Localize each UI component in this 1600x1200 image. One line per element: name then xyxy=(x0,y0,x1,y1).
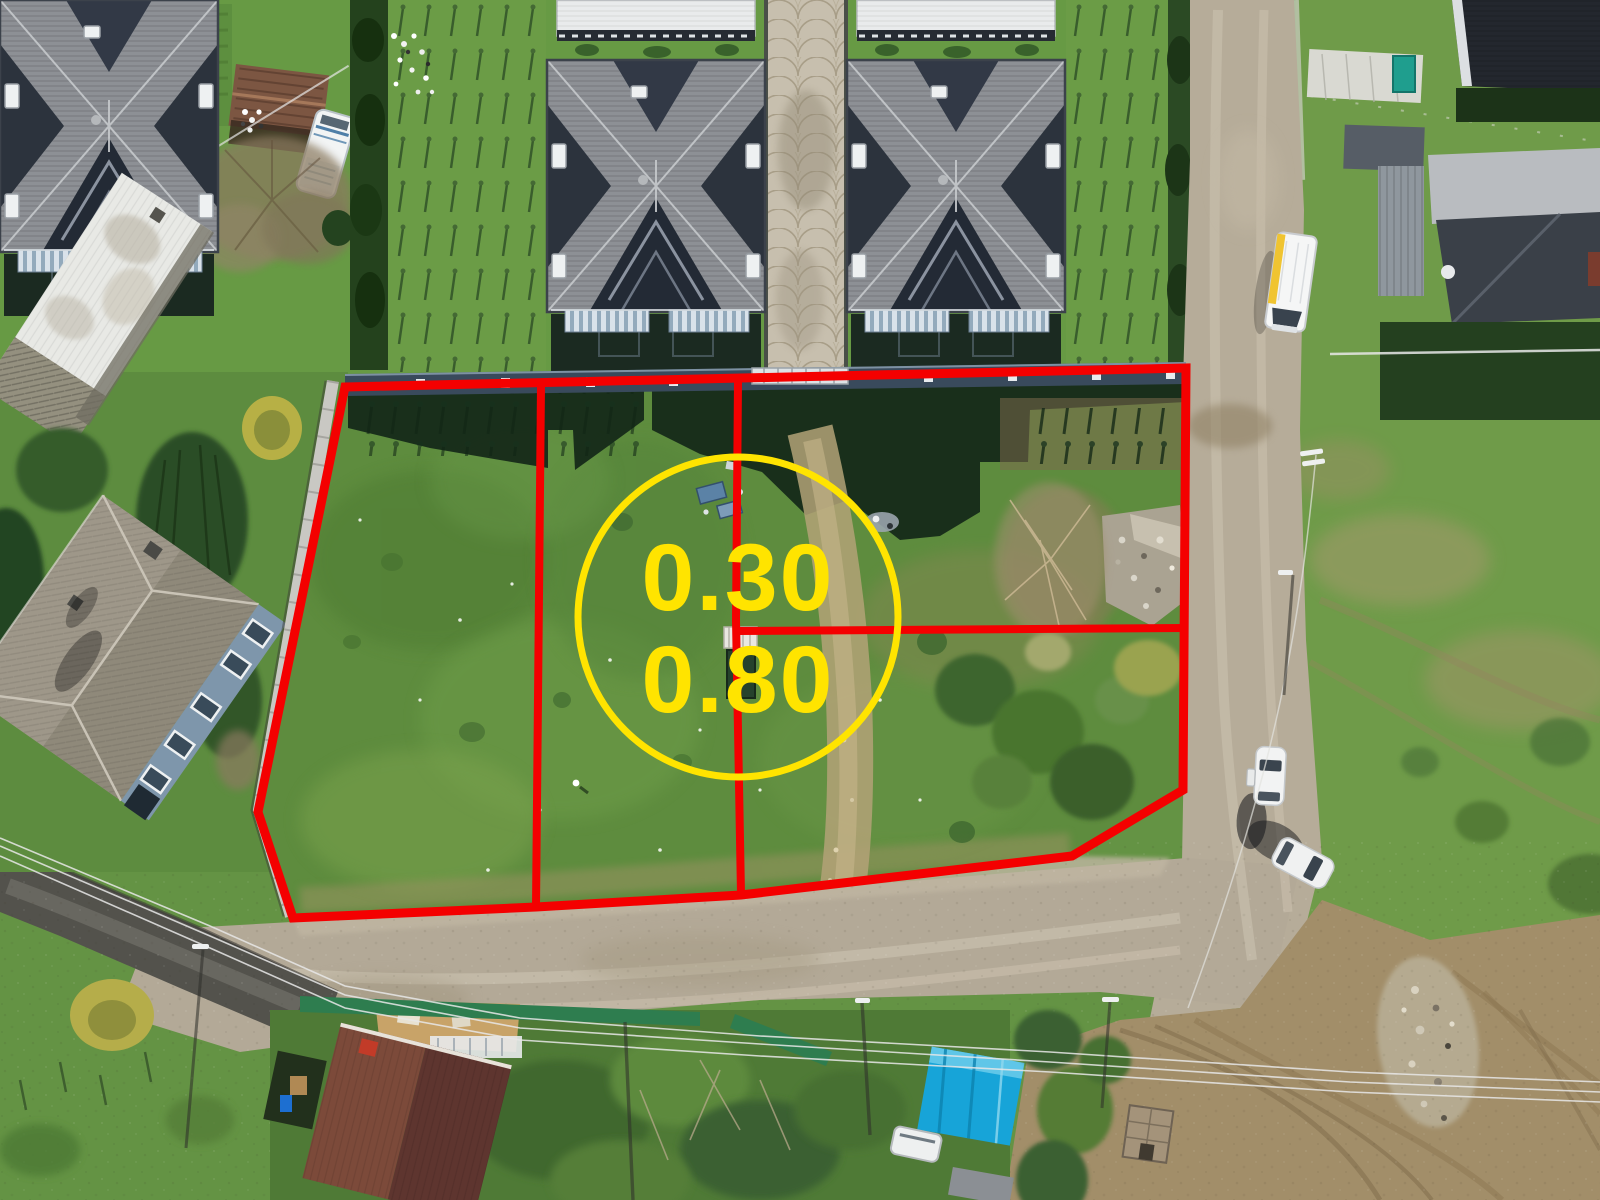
parcel-divider-left xyxy=(536,386,541,906)
blue-box xyxy=(280,1095,292,1112)
zoning-ratio-top: 0.30 xyxy=(642,525,835,631)
blue-tarp-structure xyxy=(917,1047,1024,1146)
drone-photo-listing: 0.30 0.80 xyxy=(0,0,1600,1200)
aerial-photo: 0.30 0.80 xyxy=(0,0,1600,1200)
teal-bench xyxy=(1393,56,1415,92)
stone-walkway xyxy=(766,0,846,378)
wooden-hut xyxy=(1123,1105,1174,1163)
gray-roof-house xyxy=(1343,125,1600,324)
zoning-ratio-bottom: 0.80 xyxy=(642,627,835,733)
